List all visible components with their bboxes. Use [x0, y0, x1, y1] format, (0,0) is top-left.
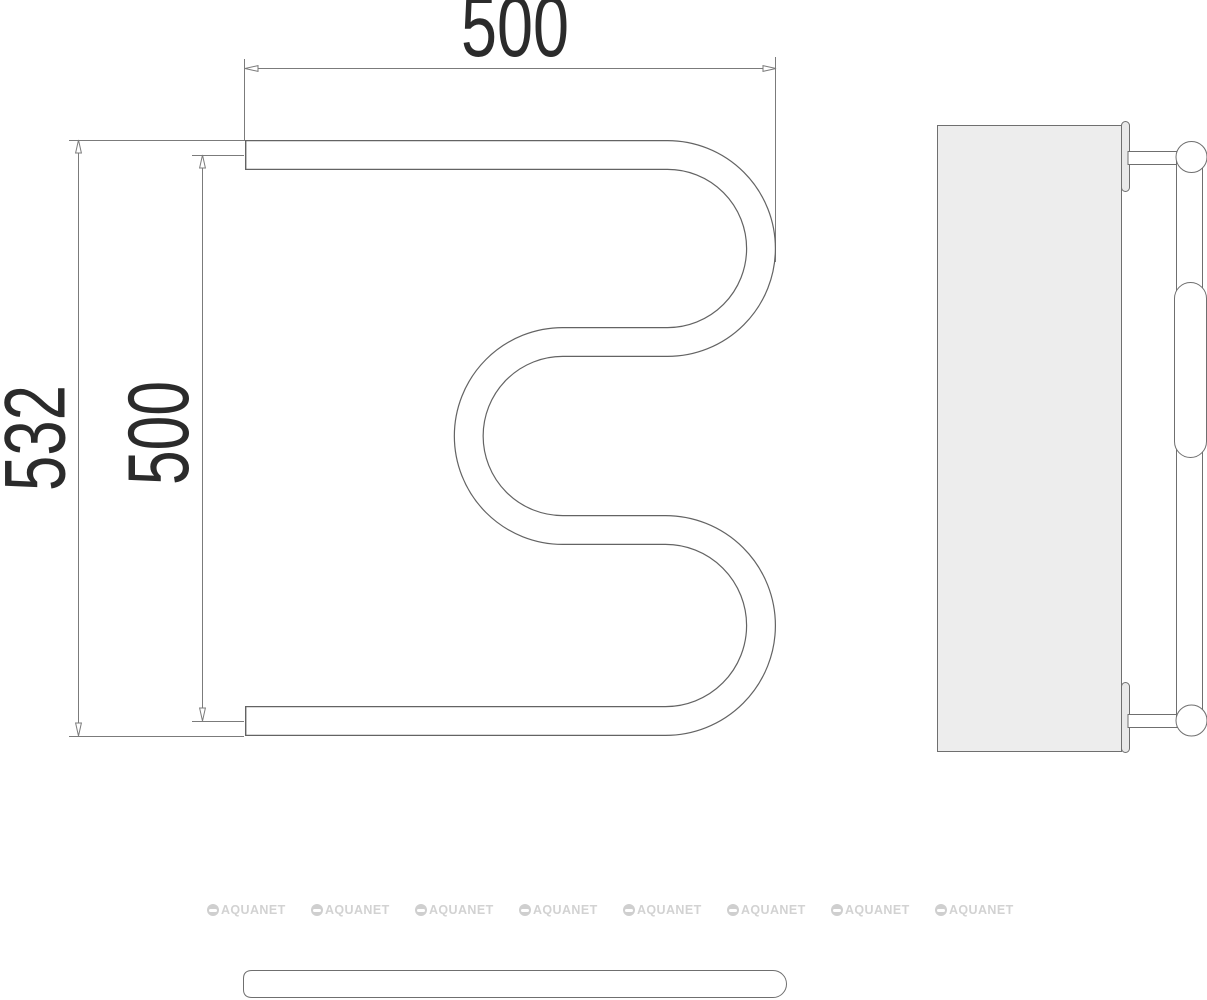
pipe-front-outline	[245, 155, 761, 721]
dim-label-width: 500	[461, 0, 569, 75]
dim-arrow-down-axis-icon	[200, 708, 206, 721]
pipe-side-bend-capsule	[1175, 283, 1207, 458]
wall-union-top	[1176, 142, 1207, 173]
dim-arrow-up-axis-icon	[200, 155, 206, 168]
pipe-top-view	[244, 971, 787, 998]
wall-union-bottom	[1176, 705, 1207, 736]
dim-arrow-left-icon	[245, 66, 258, 72]
wall-panel	[938, 126, 1122, 752]
dim-arrow-right-icon	[763, 66, 776, 72]
dim-label-overall-height: 532	[0, 385, 84, 491]
pipe-front-view	[245, 155, 761, 721]
pipe-stub-bottom	[1128, 715, 1177, 728]
drawing-svg: 500 532 500	[0, 0, 1207, 1000]
towel-rail-technical-drawing: 500 532 500 AQUANET A	[0, 0, 1207, 1000]
pipe-front-fill	[246, 155, 761, 721]
dim-label-axis-height: 500	[111, 381, 207, 485]
dim-arrow-down-overall-icon	[76, 723, 82, 736]
side-view	[938, 122, 1207, 753]
pipe-stub-top	[1128, 152, 1177, 165]
dim-arrow-up-overall-icon	[76, 140, 82, 153]
